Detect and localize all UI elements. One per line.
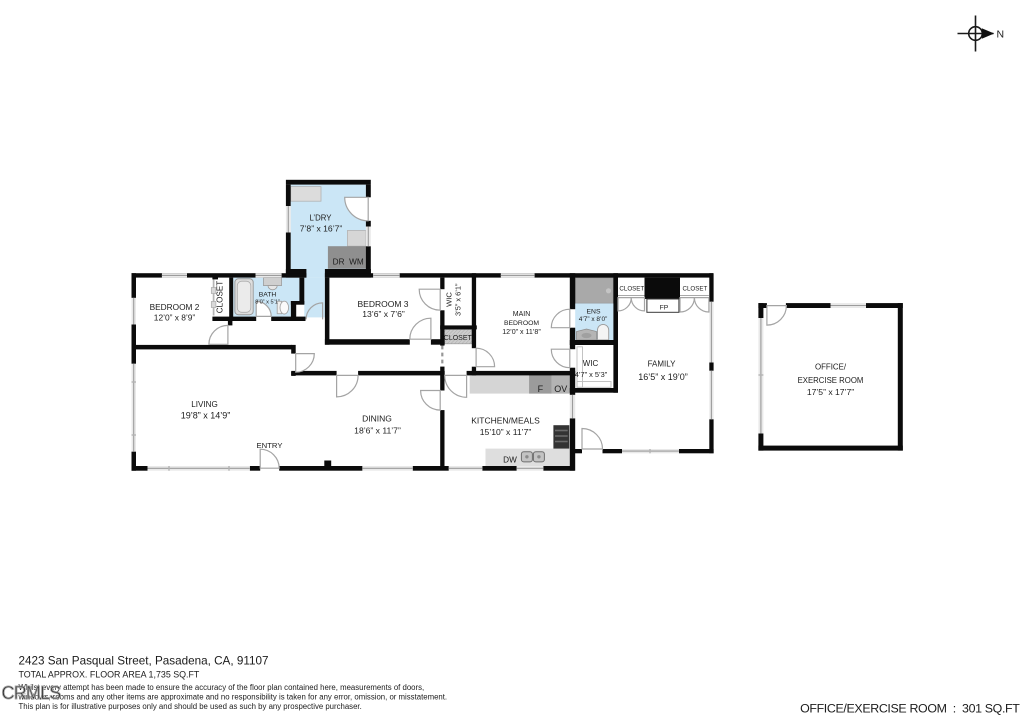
svg-text:CLOSET: CLOSET bbox=[444, 335, 473, 342]
svg-text:L’DRY: L’DRY bbox=[310, 214, 333, 223]
svg-text:KITCHEN/MEALS: KITCHEN/MEALS bbox=[471, 415, 540, 425]
svg-text:OFFICE/EXERCISE ROOM : 301 S: OFFICE/EXERCISE ROOM : 301 SQ.FT bbox=[800, 702, 1020, 716]
svg-text:3’5” x 6’1”: 3’5” x 6’1” bbox=[454, 283, 463, 316]
svg-text:WM: WM bbox=[349, 258, 364, 267]
svg-text:OFFICE/: OFFICE/ bbox=[815, 363, 847, 372]
svg-text:BATH: BATH bbox=[259, 291, 277, 298]
svg-text:TOTAL APPROX. FLOOR AREA 1,735: TOTAL APPROX. FLOOR AREA 1,735 SQ.FT bbox=[19, 670, 200, 680]
svg-text:EXERCISE ROOM: EXERCISE ROOM bbox=[798, 376, 864, 385]
svg-text:OV: OV bbox=[554, 384, 567, 394]
svg-text:4’7” x 5’3”: 4’7” x 5’3” bbox=[575, 370, 608, 379]
svg-text:DW: DW bbox=[503, 456, 517, 465]
svg-text:LIVING: LIVING bbox=[191, 400, 218, 409]
svg-text:BEDROOM: BEDROOM bbox=[504, 320, 539, 327]
svg-text:18’6” x 11’7”: 18’6” x 11’7” bbox=[354, 425, 401, 435]
svg-text:13’6” x 7’6”: 13’6” x 7’6” bbox=[362, 309, 405, 319]
svg-text:15’10” x 11’7”: 15’10” x 11’7” bbox=[480, 427, 532, 437]
svg-text:DR: DR bbox=[333, 258, 345, 267]
svg-text:16’5” x 19’0”: 16’5” x 19’0” bbox=[638, 372, 688, 382]
svg-text:8’0” x 5’1”: 8’0” x 5’1” bbox=[255, 300, 280, 306]
svg-text:BEDROOM 3: BEDROOM 3 bbox=[357, 299, 408, 309]
svg-text:F: F bbox=[538, 384, 544, 394]
svg-text:WIC: WIC bbox=[445, 292, 454, 307]
svg-text:N: N bbox=[997, 29, 1005, 41]
svg-text:19’8” x 14’9”: 19’8” x 14’9” bbox=[181, 411, 231, 421]
svg-text:windows, rooms and any other i: windows, rooms and any other items are a… bbox=[18, 693, 448, 702]
svg-text:This plan is for illustrative: This plan is for illustrative purposes o… bbox=[19, 702, 362, 711]
svg-text:MAIN: MAIN bbox=[513, 311, 531, 318]
svg-text:ENS: ENS bbox=[587, 309, 601, 316]
svg-text:WIC: WIC bbox=[583, 359, 599, 368]
svg-text:7’8” x 16’7”: 7’8” x 16’7” bbox=[300, 224, 343, 234]
svg-text:FAMILY: FAMILY bbox=[648, 360, 677, 369]
svg-text:17’5” x 17’7”: 17’5” x 17’7” bbox=[807, 387, 854, 397]
svg-text:CLOSET: CLOSET bbox=[683, 285, 708, 292]
svg-text:Whilst every attempt has been: Whilst every attempt has been made to en… bbox=[19, 683, 425, 692]
svg-text:CLOSET: CLOSET bbox=[215, 281, 224, 313]
svg-text:2423 San Pasqual Street, Pasad: 2423 San Pasqual Street, Pasadena, CA, 9… bbox=[19, 655, 269, 668]
svg-text:CLOSET: CLOSET bbox=[619, 285, 644, 292]
svg-text:BEDROOM 2: BEDROOM 2 bbox=[150, 302, 200, 312]
svg-text:ENTRY: ENTRY bbox=[257, 441, 283, 450]
svg-text:4’7” x 8’0”: 4’7” x 8’0” bbox=[579, 316, 608, 323]
svg-text:12’0” x 8’9”: 12’0” x 8’9” bbox=[154, 312, 196, 322]
svg-text:12’0” x 11’8”: 12’0” x 11’8” bbox=[502, 328, 541, 336]
svg-text:CRMLS: CRMLS bbox=[2, 683, 62, 703]
svg-text:DINING: DINING bbox=[362, 414, 392, 424]
svg-text:FP: FP bbox=[660, 305, 669, 312]
